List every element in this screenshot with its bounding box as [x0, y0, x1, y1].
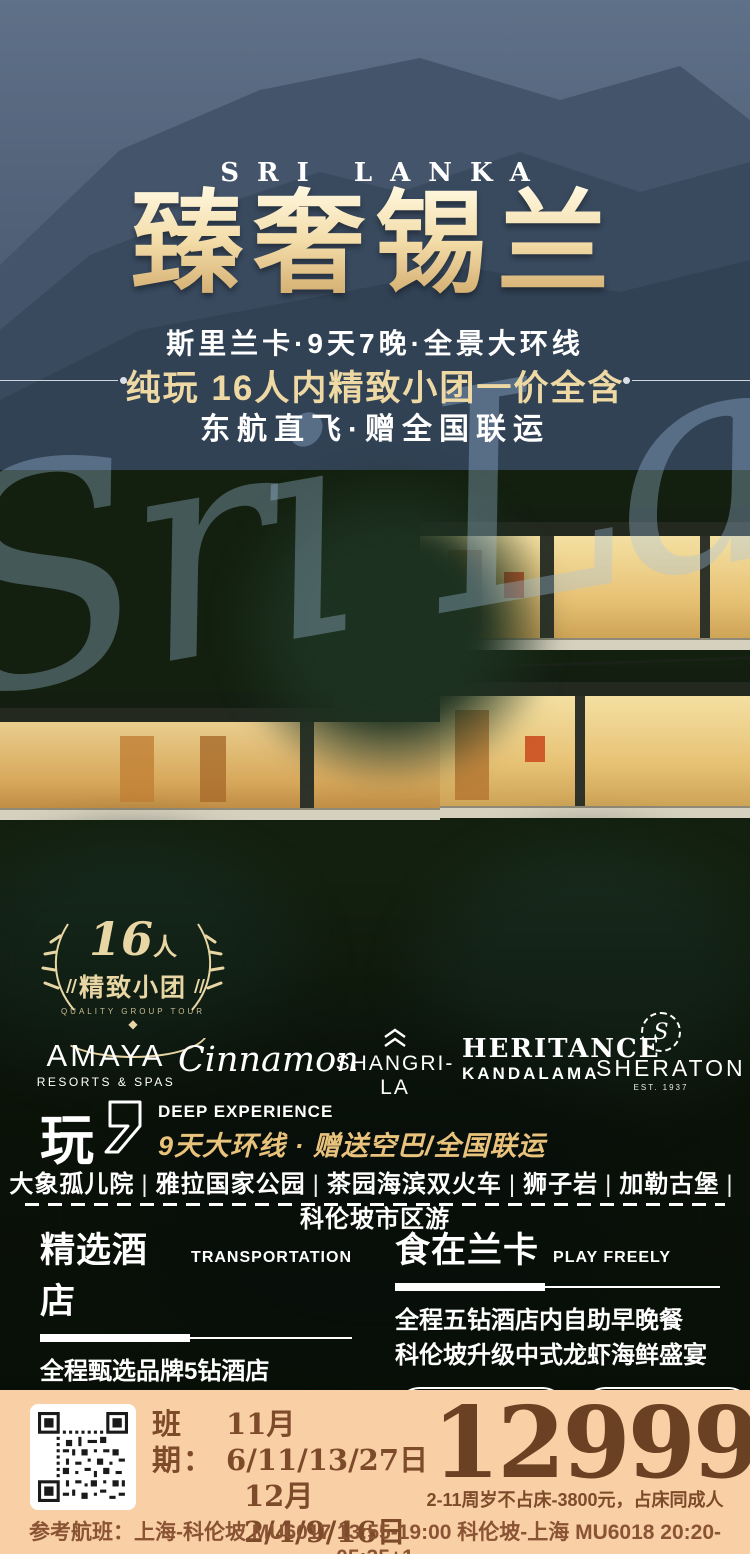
logo-shangri-la: SHANGRI-LA [330, 1028, 460, 1100]
heritance-wordmark: HERITANCE [462, 1034, 592, 1064]
sheraton-s-emblem-icon: S [641, 1012, 681, 1052]
attraction-item: 雅拉国家公园 [156, 1171, 306, 1198]
hotels-line1: 全程甄选品牌5钻酒店 [40, 1354, 352, 1389]
badge-caption: QUALITY GROUP TOUR [38, 1007, 228, 1016]
qr-code-image [38, 1412, 128, 1502]
child-price-note: 2-11周岁不占床-3800元，占床同成人 [420, 1486, 730, 1512]
subtitle-route: 斯里兰卡·9天7晚·全景大环线 [0, 322, 750, 362]
dining-title: 食在兰卡 [395, 1222, 539, 1273]
separator: | [726, 1171, 733, 1198]
hotel-brands-row: AMAYA RESORTS & SPAS Cinnamon SHANGRI-LA… [0, 1026, 750, 1102]
logo-amaya: AMAYA RESORTS & SPAS [36, 1038, 176, 1089]
qr-code [30, 1404, 136, 1510]
attraction-item: 大象孤儿院 [9, 1171, 134, 1198]
group-size: 16人 [38, 912, 228, 966]
experience-highlight: 9天大环线 · 赠送空巴/全国联运 [158, 1124, 546, 1163]
hotels-column-header: 精选酒店 TRANSPORTATION [40, 1222, 352, 1324]
group-size-unit: 人 [153, 932, 177, 961]
dashed-divider [25, 1203, 725, 1206]
schedule-dates-november: 11月6/11/13/27日 [226, 1406, 442, 1478]
dining-line1: 全程五钻酒店内自助早晚餐 [395, 1303, 720, 1338]
attraction-item: 茶园海滨双火车 [327, 1171, 502, 1198]
subtitle-highlight-row: 纯玩 16人内精致小团一价全含 [0, 358, 750, 404]
dining-details: 全程五钻酒店内自助早晚餐 科伦坡升级中式龙虾海鲜盛宴 [395, 1303, 720, 1373]
amaya-wordmark: AMAYA [36, 1038, 176, 1074]
travel-poster: Sri Lanka SRI LANKA 臻奢锡兰 斯里兰卡·9天7晚·全景大环线… [0, 0, 750, 1554]
feature-columns: 精选酒店 TRANSPORTATION 全程甄选品牌5钻酒店 海滨升级两晚国际5… [0, 1222, 750, 1382]
quote-mark-icon [102, 1098, 146, 1156]
logo-sheraton: S SHERATON EST. 1937 [596, 1012, 726, 1092]
experience-english: DEEP EXPERIENCE [158, 1102, 333, 1122]
hotels-english-label: TRANSPORTATION [191, 1249, 352, 1267]
shangri-la-wordmark: SHANGRI-LA [330, 1052, 460, 1100]
attraction-item: 加勒古堡 [619, 1171, 719, 1198]
separator: | [313, 1171, 320, 1198]
experience-section: 玩 DEEP EXPERIENCE 9天大环线 · 赠送空巴/全国联运 [40, 1098, 720, 1156]
logo-heritance: HERITANCE KANDALAMA [462, 1034, 592, 1084]
underline-rule [40, 1334, 352, 1342]
sheraton-est: EST. 1937 [596, 1083, 726, 1092]
group-size-badge: 16人 精致小团 QUALITY GROUP TOUR ◆ [38, 912, 228, 1030]
poster-title: 臻奢锡兰 [0, 180, 750, 309]
dining-column-header: 食在兰卡 PLAY FREELY [395, 1222, 720, 1273]
amaya-tagline: RESORTS & SPAS [36, 1075, 176, 1089]
hotels-title: 精选酒店 [40, 1222, 177, 1324]
shangri-la-mountain-icon [330, 1028, 460, 1050]
flight-reference: 参考航班：上海-科伦坡 MU6017 13:55-19:00 科伦坡-上海 MU… [0, 1516, 750, 1554]
group-size-number: 16 [89, 912, 153, 966]
attraction-item: 狮子岩 [523, 1171, 598, 1198]
right-line-decoration [632, 380, 750, 381]
badge-label: 精致小团 [79, 968, 187, 1004]
footer-price-bar: 班期： 11月6/11/13/27日 12月2/4/9/16日 DEPARTUR… [0, 1390, 750, 1554]
separator: | [141, 1171, 148, 1198]
subtitle-flight: 东航直飞·赠全国联运 [0, 404, 750, 448]
separator: | [605, 1171, 612, 1198]
sheraton-wordmark: SHERATON [596, 1055, 726, 1082]
dining-english-label: PLAY FREELY [553, 1249, 671, 1267]
dining-line2: 科伦坡升级中式龙虾海鲜盛宴 [395, 1338, 720, 1373]
schedule-label: 班期： [152, 1406, 226, 1478]
heritance-subname: KANDALAMA [462, 1064, 592, 1084]
logo-cinnamon: Cinnamon [178, 1040, 328, 1080]
underline-rule [395, 1283, 720, 1291]
separator: | [509, 1171, 516, 1198]
